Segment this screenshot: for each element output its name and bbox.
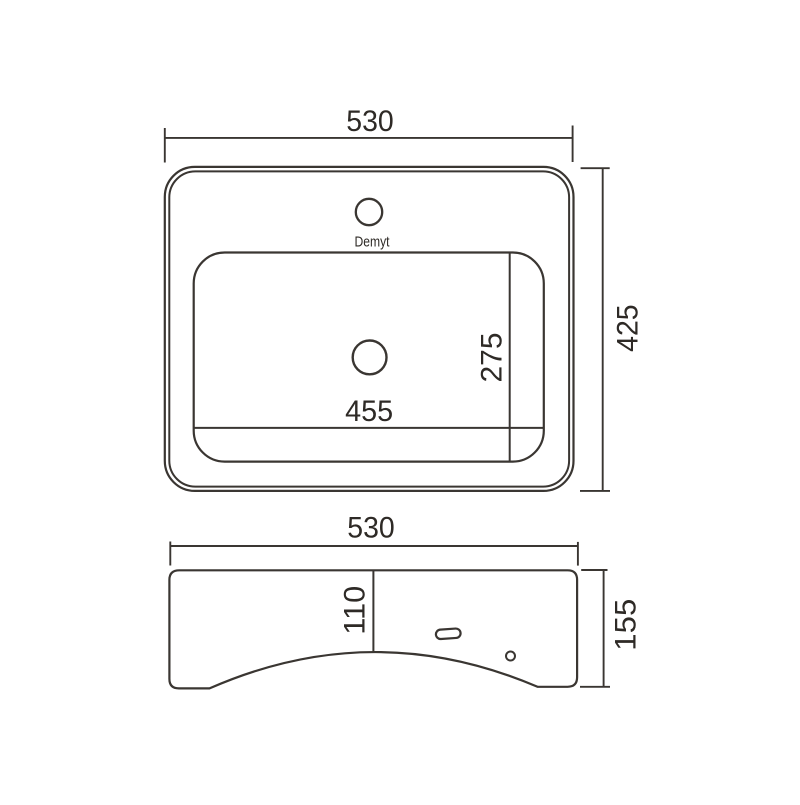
svg-text:455: 455 — [345, 395, 393, 428]
svg-text:Demyt: Demyt — [355, 233, 391, 250]
svg-text:275: 275 — [476, 333, 509, 383]
svg-text:110: 110 — [339, 586, 372, 635]
svg-text:530: 530 — [346, 105, 394, 138]
svg-text:530: 530 — [347, 512, 395, 545]
svg-text:155: 155 — [609, 599, 642, 651]
svg-text:425: 425 — [612, 304, 645, 352]
